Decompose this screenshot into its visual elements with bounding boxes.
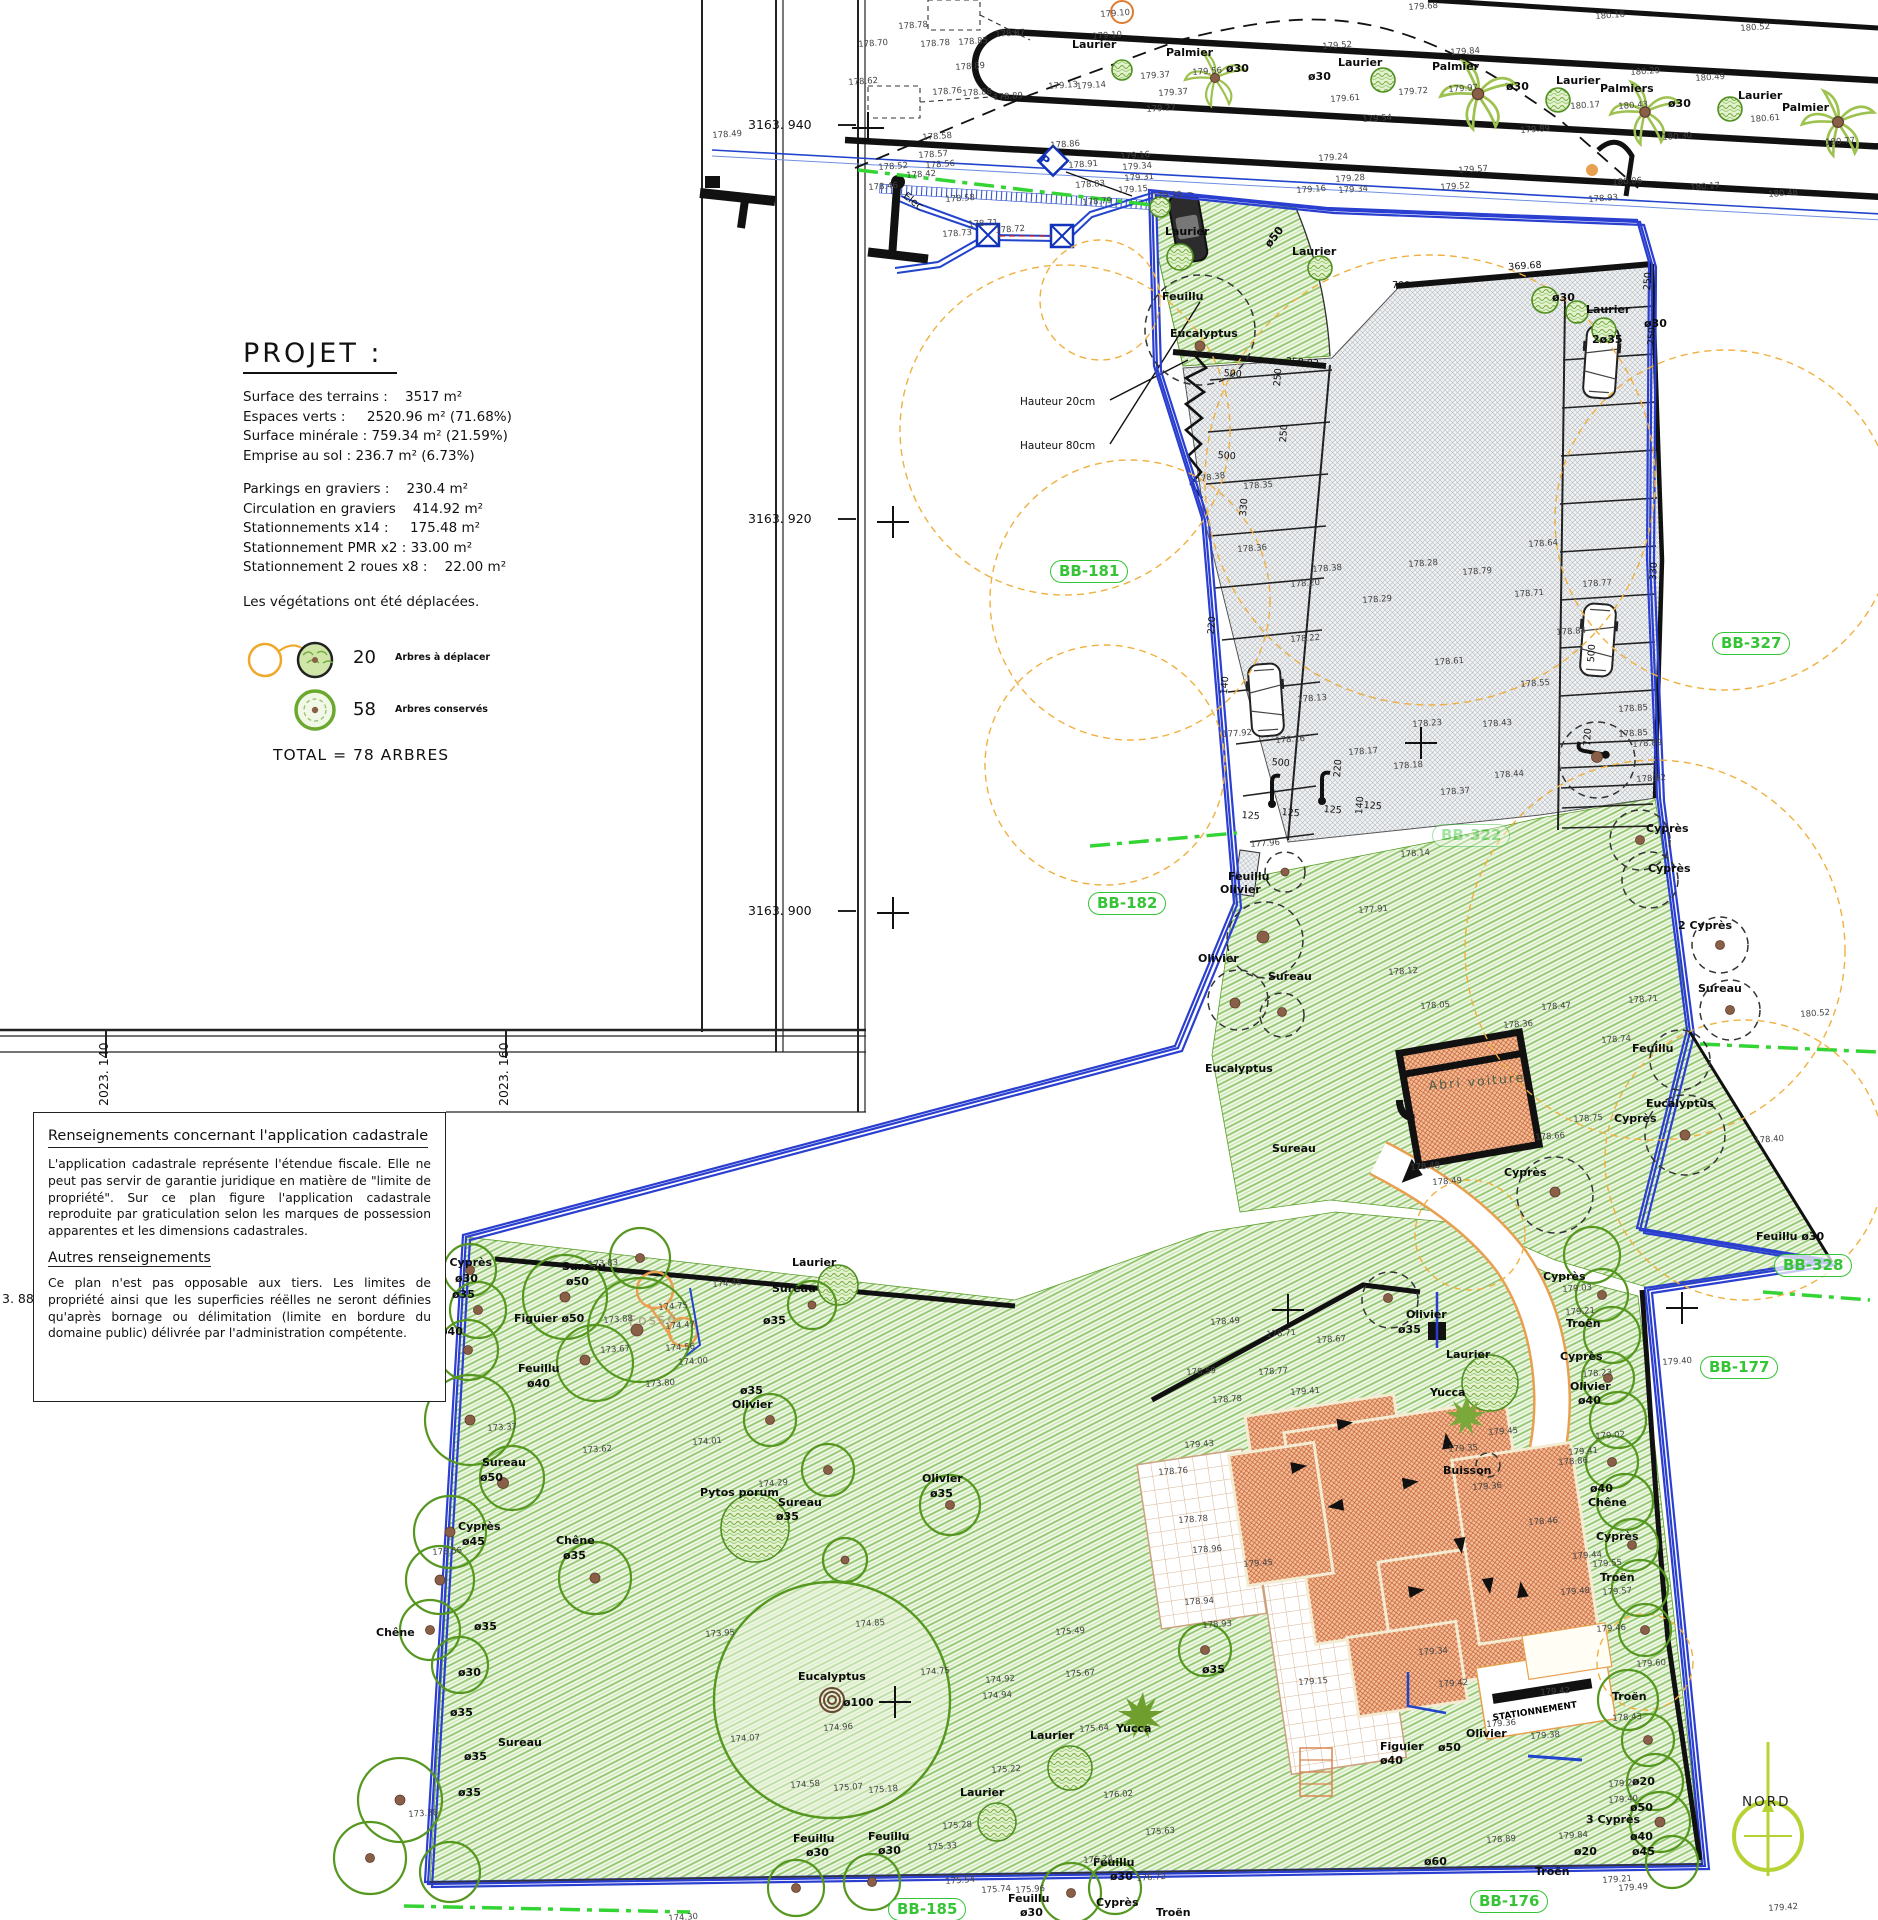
elevation-label: 179.42 bbox=[1540, 1686, 1570, 1698]
elevation-label: 178.93 bbox=[1588, 193, 1618, 205]
tree-label: Cyprès bbox=[1646, 822, 1689, 835]
dimension-label: 220 bbox=[1206, 616, 1218, 635]
elevation-label: 179.36 bbox=[1472, 1481, 1502, 1493]
elevation-label: 179.35 bbox=[1448, 1443, 1478, 1455]
elevation-label: 178.86 bbox=[1558, 1456, 1588, 1468]
tree-label: Eucalyptus bbox=[1170, 327, 1238, 340]
dimension-label: 125 bbox=[1323, 804, 1342, 816]
elevation-label: 180.30 bbox=[1662, 131, 1692, 143]
tree-label: Laurier bbox=[1292, 245, 1336, 258]
elevation-label: 178.37 bbox=[1440, 786, 1470, 798]
elevation-label: 178.38 bbox=[1312, 563, 1342, 575]
elevation-label: 179.46 bbox=[1596, 1623, 1626, 1635]
elevation-label: 175.33 bbox=[927, 1841, 957, 1853]
elevation-label: 179.10 bbox=[1092, 30, 1122, 42]
tree-label: Feuillu ø30 bbox=[1756, 1230, 1824, 1243]
elevation-label: 178.78 bbox=[920, 38, 950, 50]
tree-label: ø35 bbox=[776, 1510, 799, 1523]
elevation-label: 174.07 bbox=[730, 1733, 760, 1745]
elevation-label: 173.56 bbox=[432, 1546, 462, 1558]
tree-label: Sureau bbox=[1268, 970, 1312, 983]
tree-label: Olivier bbox=[1570, 1380, 1611, 1393]
elevation-label: 178.52 bbox=[878, 161, 908, 173]
elevation-label: 173.80 bbox=[645, 1378, 675, 1390]
elevation-label: 178.23 bbox=[1582, 1368, 1612, 1380]
tree-label: Troën bbox=[1600, 1571, 1635, 1584]
elevation-label: 178.49 bbox=[1432, 1176, 1462, 1188]
dimension-label: 250 bbox=[1272, 368, 1284, 387]
tree-label: 2ø35 bbox=[1592, 333, 1623, 346]
dimension-label: 330 bbox=[1648, 562, 1660, 581]
tree-label: Eucalyptus bbox=[1646, 1097, 1714, 1110]
elevation-label: 174.00 bbox=[678, 1356, 708, 1368]
tree-label: Olivier bbox=[1198, 952, 1239, 965]
elevation-label: 176.24 bbox=[1083, 1854, 1113, 1866]
elevation-label: 179.24 bbox=[1318, 152, 1348, 164]
elevation-label: 179.02 bbox=[1595, 1430, 1625, 1442]
elevation-label: 179.38 bbox=[1530, 1730, 1560, 1742]
elevation-label: 173.37 bbox=[487, 1422, 517, 1434]
project-stat-line: Surface minérale : 759.34 m² (21.59%) bbox=[243, 427, 603, 447]
elevation-label: 179.72 bbox=[1398, 86, 1428, 98]
elevation-label: 179.42 bbox=[1768, 1902, 1798, 1914]
annotation-label: Hauteur 20cm bbox=[1020, 396, 1095, 408]
tree-label: Cyprès bbox=[1543, 1270, 1586, 1283]
elevation-label: 179.45 bbox=[1488, 1426, 1518, 1438]
elevation-label: 178.86 bbox=[1050, 139, 1080, 151]
tree-label: Buisson bbox=[1443, 1464, 1491, 1477]
elevation-label: 179.16 bbox=[1296, 184, 1326, 196]
elevation-label: 178.84 bbox=[1556, 626, 1586, 638]
elevation-label: 178.13 bbox=[1297, 693, 1327, 705]
tree-label: Laurier bbox=[1446, 1348, 1490, 1361]
elevation-label: 179.34 bbox=[1122, 161, 1152, 173]
tree-label: ø30 bbox=[1110, 1870, 1133, 1883]
parcel-label: BB-176 bbox=[1470, 1890, 1548, 1913]
elevation-label: 179.54 bbox=[1362, 113, 1392, 125]
tree-label: 3 Cyprès bbox=[1586, 1813, 1640, 1826]
elevation-label: 179.60 bbox=[1636, 1658, 1666, 1670]
project-parking-stats: Parkings en graviers : 230.4 m²Circulati… bbox=[243, 480, 603, 578]
tree-legend: 20 Arbres à déplacer 58 Arbres conservés… bbox=[243, 632, 603, 764]
parcel-label: BB-181 bbox=[1050, 560, 1128, 583]
tree-label: Troën bbox=[1535, 1865, 1570, 1878]
dimension-label: 700 bbox=[1392, 280, 1410, 291]
elevation-label: 179.21 bbox=[1565, 1306, 1595, 1318]
parcel-label: BB-182 bbox=[1088, 892, 1166, 915]
elevation-label: 178.89 bbox=[993, 91, 1023, 103]
elevation-label: 179.68 bbox=[1408, 1, 1438, 13]
tree-label: ø50 bbox=[1438, 1741, 1461, 1754]
elevation-label: 180.61 bbox=[1750, 113, 1780, 125]
elevation-label: 179.84 bbox=[1450, 46, 1480, 58]
tree-total: TOTAL = 78 ARBRES bbox=[273, 746, 603, 764]
elevation-label: 180.52 bbox=[1740, 22, 1770, 34]
elevation-label: 179.14 bbox=[1076, 80, 1106, 92]
dimension-label: 500 bbox=[1586, 644, 1598, 663]
elevation-label: 178.66 bbox=[1535, 1131, 1565, 1143]
tree-label: Palmiers bbox=[1600, 82, 1654, 95]
elevation-label: 179.84 bbox=[1558, 1830, 1588, 1842]
cadastre-paragraph-2: Ce plan n'est pas opposable aux tiers. L… bbox=[48, 1275, 431, 1342]
elevation-label: 179.89 bbox=[1520, 124, 1550, 136]
elevation-label: 175.64 bbox=[1079, 1723, 1109, 1735]
elevation-label: 175.96 bbox=[1015, 1884, 1045, 1896]
elevation-label: 180.49 bbox=[1695, 72, 1725, 84]
elevation-label: 175.28 bbox=[942, 1820, 972, 1832]
tree-label: Cyprès bbox=[1596, 1530, 1639, 1543]
tree-label: ø50 bbox=[566, 1275, 589, 1288]
elevation-label: 178.64 bbox=[1528, 538, 1558, 550]
elevation-label: 176.02 bbox=[1103, 1789, 1133, 1801]
tree-label: ø35 bbox=[930, 1487, 953, 1500]
elevation-label: 178.16 bbox=[1275, 734, 1305, 746]
tree-label: ø30 bbox=[458, 1666, 481, 1679]
elevation-label: 178.85 bbox=[958, 36, 988, 48]
car-icon bbox=[1245, 663, 1288, 737]
dimension-label: 720 bbox=[1582, 728, 1594, 747]
elevation-label: 177.91 bbox=[1358, 904, 1388, 916]
elevation-label: 178.75 bbox=[1573, 1113, 1603, 1125]
elevation-label: 180.17 bbox=[1690, 181, 1720, 193]
tree-label: Olivier bbox=[732, 1398, 773, 1411]
tree-label: Eucalyptus bbox=[798, 1670, 866, 1683]
elevation-label: 178.59 bbox=[1186, 1366, 1216, 1378]
project-stat-line: Stationnement 2 roues x8 : 22.00 m² bbox=[243, 558, 603, 578]
tree-label: ø100 bbox=[843, 1696, 874, 1709]
elevation-label: 178.17 bbox=[1348, 746, 1378, 758]
cadastre-subtitle: Autres renseignements bbox=[48, 1250, 211, 1267]
elevation-label: 179.41 bbox=[1290, 1386, 1320, 1398]
tree-label: ø40 bbox=[1578, 1394, 1601, 1407]
elevation-label: 178.89 bbox=[1632, 738, 1662, 750]
tree-label: Sureau bbox=[1698, 982, 1742, 995]
elevation-label: 178.71 bbox=[968, 218, 998, 230]
elevation-label: 174.58 bbox=[790, 1779, 820, 1791]
elevation-label: 178.36 bbox=[1237, 543, 1267, 555]
elevation-label: 178.48 bbox=[1410, 1161, 1440, 1173]
elevation-label: 178.79 bbox=[1082, 196, 1112, 208]
elevation-label: 178.35 bbox=[1243, 480, 1273, 492]
dimension-label: 250 bbox=[1278, 424, 1290, 443]
parcel-label: BB-328 bbox=[1774, 1254, 1852, 1277]
elevation-label: 175.67 bbox=[1065, 1668, 1095, 1680]
elevation-label: 178.18 bbox=[1393, 760, 1423, 772]
parcel-label: BB-177 bbox=[1700, 1356, 1778, 1379]
elevation-label: 179.37 bbox=[1140, 70, 1170, 82]
tree-label: Cyprès bbox=[1096, 1896, 1139, 1909]
tree-label: ø35 bbox=[563, 1549, 586, 1562]
elevation-label: 178.61 bbox=[1434, 656, 1464, 668]
project-stat-line: Stationnements x14 : 175.48 m² bbox=[243, 519, 603, 539]
elevation-label: 178.20 bbox=[1290, 578, 1320, 590]
tree-label: Troën bbox=[1612, 1690, 1647, 1703]
gate-symbol bbox=[1598, 142, 1632, 196]
tree-label: ø30 bbox=[806, 1846, 829, 1859]
elevation-label: 178.88 bbox=[962, 87, 992, 99]
elevation-label: 179.57 bbox=[1602, 1586, 1632, 1598]
tree-label: Cyprès bbox=[1614, 1112, 1657, 1125]
tree-label: Eucalyptus bbox=[1205, 1062, 1273, 1075]
tree-label: Chêne bbox=[556, 1534, 595, 1547]
elevation-label: 178.71 bbox=[1514, 588, 1544, 600]
elevation-label: 178.43 bbox=[1612, 1712, 1642, 1724]
elevation-label: 180.17 bbox=[1570, 100, 1600, 112]
elevation-label: 173.83 bbox=[588, 1258, 618, 1270]
dimension-label: 369.68 bbox=[1508, 260, 1542, 273]
tree-label: Laurier bbox=[960, 1786, 1004, 1799]
elevation-label: 174.29 bbox=[758, 1478, 788, 1490]
elevation-label: 174.92 bbox=[985, 1674, 1015, 1686]
elevation-label: 179.34 bbox=[1418, 1646, 1448, 1658]
elevation-label: 173.38 bbox=[408, 1808, 438, 1820]
tree-label: ø30 bbox=[1020, 1906, 1043, 1919]
elevation-label: 179.61 bbox=[1330, 93, 1360, 105]
elevation-label: 175.22 bbox=[991, 1764, 1021, 1776]
dimension-label: 500 bbox=[1217, 450, 1236, 462]
elevation-label: 174.01 bbox=[692, 1436, 722, 1448]
elevation-label: 174.45 bbox=[712, 1278, 742, 1290]
elevation-label: 178.42 bbox=[906, 169, 936, 181]
tree-label: Chêne bbox=[376, 1626, 415, 1639]
tree-label: Feuillu bbox=[518, 1362, 560, 1375]
project-panel: PROJET : Surface des terrains : 3517 m²E… bbox=[243, 338, 603, 764]
tree-label: ø35 bbox=[474, 1620, 497, 1633]
project-title: PROJET : bbox=[243, 338, 397, 374]
elevation-label: 180.06 bbox=[1612, 176, 1642, 188]
elevation-label: 178.87 bbox=[995, 28, 1025, 40]
elevation-label: 174.96 bbox=[823, 1722, 853, 1734]
elevation-label: 174.56 bbox=[665, 1342, 695, 1354]
elevation-label: 179.40 bbox=[1662, 1356, 1692, 1368]
elevation-label: 178.76 bbox=[1158, 1466, 1188, 1478]
kept-tree-icon bbox=[243, 684, 353, 736]
tree-label: 2 Cyprès bbox=[1678, 919, 1732, 932]
tree-label: ø30 bbox=[1506, 80, 1529, 93]
elevation-label: 178.77 bbox=[1582, 578, 1612, 590]
tree-label: ø45 bbox=[1632, 1845, 1655, 1858]
elevation-label: 180.52 bbox=[1800, 1008, 1830, 1020]
tree-label: ø40 bbox=[1380, 1754, 1403, 1767]
elevation-label: 178.62 bbox=[848, 76, 878, 88]
tree-label: Cyprès bbox=[458, 1520, 501, 1533]
elevation-label: 173.62 bbox=[582, 1444, 612, 1456]
kept-tree-count: 58 bbox=[353, 699, 395, 720]
elevation-label: 179.03 bbox=[1562, 1283, 1592, 1295]
elevation-label: 174.75 bbox=[658, 1301, 688, 1313]
elevation-label: 178.70 bbox=[858, 38, 888, 50]
project-stat-line: Espaces verts : 2520.96 m² (71.68%) bbox=[243, 408, 603, 428]
elevation-label: 178.91 bbox=[1068, 159, 1098, 171]
elevation-label: 179.27 bbox=[1146, 103, 1176, 115]
elevation-label: 178.74 bbox=[1601, 1034, 1631, 1046]
tree-label: Sureau bbox=[482, 1456, 526, 1469]
dimension-label: 125 bbox=[1281, 807, 1300, 819]
elevation-label: 173.67 bbox=[600, 1344, 630, 1356]
elevation-label: 179.36 bbox=[1486, 1718, 1516, 1730]
kept-tree-label: Arbres conservés bbox=[395, 704, 488, 715]
elevation-label: 178.71 bbox=[1628, 994, 1658, 1006]
dimension-label: 250 bbox=[1642, 272, 1654, 291]
tree-label: Figuier ø50 bbox=[514, 1312, 584, 1325]
tree-label: ø40 bbox=[527, 1377, 550, 1390]
grid-coordinate-label: 3163. 900 bbox=[748, 903, 812, 918]
tree-label: Laurier bbox=[1030, 1729, 1074, 1742]
parcel-label: BB-327 bbox=[1712, 632, 1790, 655]
elevation-label: 178.93 bbox=[1202, 1619, 1232, 1631]
elevation-label: 174.94 bbox=[982, 1690, 1012, 1702]
elevation-label: 175.07 bbox=[833, 1782, 863, 1794]
elevation-label: 178.49 bbox=[712, 129, 742, 141]
elevation-label: 178.58 bbox=[945, 193, 975, 205]
elevation-label: 178.40 bbox=[1754, 1134, 1784, 1146]
elevation-label: 178.23 bbox=[1412, 718, 1442, 730]
elevation-label: 179.42 bbox=[1438, 1678, 1468, 1690]
elevation-label: 179.34 bbox=[1338, 184, 1368, 196]
tree-label: Olivier bbox=[922, 1472, 963, 1485]
elevation-label: 178.92 bbox=[1636, 773, 1666, 785]
tree-label: ø20 bbox=[1574, 1845, 1597, 1858]
tree-label: Palmier bbox=[1432, 60, 1479, 73]
elevation-label: 178.78 bbox=[1212, 1394, 1242, 1406]
elevation-label: 178.77 bbox=[1258, 1366, 1288, 1378]
elevation-label: 178.49 bbox=[1210, 1316, 1240, 1328]
elevation-label: 177.96 bbox=[1250, 838, 1280, 850]
tree-label: Sureau bbox=[498, 1736, 542, 1749]
moved-tree-label: Arbres à déplacer bbox=[395, 652, 490, 663]
elevation-label: 179.55 bbox=[1592, 1558, 1622, 1570]
tree-label: Sureau bbox=[778, 1496, 822, 1509]
tree-label: Laurier bbox=[1556, 74, 1600, 87]
elevation-label: 180.16 bbox=[1595, 10, 1625, 22]
elevation-label: 178.36 bbox=[1503, 1019, 1533, 1031]
project-stat-line: Stationnement PMR x2 : 33.00 m² bbox=[243, 539, 603, 559]
tree-label: Olivier bbox=[1406, 1308, 1447, 1321]
elevation-label: 176.72 bbox=[1136, 1872, 1166, 1884]
elevation-label: 178.46 bbox=[868, 181, 898, 193]
elevation-label: 178.12 bbox=[1388, 966, 1418, 978]
tree-label: ø35 bbox=[452, 1288, 475, 1301]
elevation-label: 174.85 bbox=[855, 1618, 885, 1630]
elevation-label: 178.29 bbox=[1362, 594, 1392, 606]
tree-label: ø35 bbox=[740, 1384, 763, 1397]
tree-label: Feuillu bbox=[793, 1832, 835, 1845]
elevation-label: 178.43 bbox=[1482, 718, 1512, 730]
elevation-label: 179.56 bbox=[1192, 66, 1222, 78]
elevation-label: 179.15 bbox=[1298, 1676, 1328, 1688]
tree-label: Laurier bbox=[1165, 225, 1209, 238]
tree-label: ø35 bbox=[450, 1706, 473, 1719]
tree-label: Sureau bbox=[1272, 1142, 1316, 1155]
elevation-label: 179.29 bbox=[1152, 190, 1182, 202]
tree-label: Feuillu bbox=[1228, 870, 1270, 883]
tree-label: ø30 bbox=[1552, 291, 1575, 304]
elevation-label: 178.96 bbox=[1192, 1544, 1222, 1556]
tree-label: ø60 bbox=[1424, 1855, 1447, 1868]
tree-label: ø30 bbox=[455, 1272, 478, 1285]
elevation-label: 179.49 bbox=[1618, 1882, 1648, 1894]
elevation-label: 178.71 bbox=[1266, 1328, 1296, 1340]
elevation-label: 178.67 bbox=[1316, 1334, 1346, 1346]
grid-coordinate-label: 3163. 920 bbox=[748, 511, 812, 526]
tree-label: Figuier bbox=[1380, 1740, 1424, 1753]
tree-label: Palmier bbox=[1166, 46, 1213, 59]
legend-row-moved-trees: 20 Arbres à déplacer bbox=[243, 632, 603, 684]
elevation-label: 175.49 bbox=[1055, 1626, 1085, 1638]
dimension-label: 330 bbox=[1238, 498, 1250, 517]
tree-label: Troën bbox=[1156, 1906, 1191, 1919]
tree-label: ø40 bbox=[1630, 1830, 1653, 1843]
tree-label: Laurier bbox=[1586, 303, 1630, 316]
dimension-label: 140 bbox=[1354, 796, 1366, 815]
elevation-label: 180.43 bbox=[1618, 100, 1648, 112]
dimension-label: 140 bbox=[1219, 676, 1231, 695]
cadastre-panel: Renseignements concernant l'application … bbox=[33, 1112, 446, 1402]
tree-label: ø35 bbox=[1202, 1663, 1225, 1676]
dimension-label: 125 bbox=[1363, 800, 1382, 812]
dimension-label: 250 bbox=[1646, 327, 1658, 346]
elevation-label: 178.72 bbox=[995, 224, 1025, 236]
project-stat-line: Surface des terrains : 3517 m² bbox=[243, 388, 603, 408]
tree-label: ø50 bbox=[480, 1471, 503, 1484]
tree-label: ø30 bbox=[878, 1844, 901, 1857]
elevation-label: 174.47 bbox=[665, 1320, 695, 1332]
elevation-label: 178.58 bbox=[922, 131, 952, 143]
elevation-label: 178.47 bbox=[1541, 1001, 1571, 1013]
tree-label: Feuillu bbox=[868, 1830, 910, 1843]
elevation-label: 179.13 bbox=[1048, 80, 1078, 92]
elevation-label: 178.89 bbox=[1486, 1834, 1516, 1846]
dimension-label: 500 bbox=[1223, 368, 1242, 380]
site-plan-sheet: ElecHauteur 20cmHauteur 80cmAbri voiture… bbox=[0, 0, 1878, 1920]
tree-label: Laurier bbox=[1738, 89, 1782, 102]
elevation-label: 179.16 bbox=[1120, 150, 1150, 162]
elevation-label: 179.28 bbox=[1335, 173, 1365, 185]
tree-label: Feuillu bbox=[1632, 1042, 1674, 1055]
elevation-label: 178.79 bbox=[1462, 566, 1492, 578]
elevation-label: 175.54 bbox=[945, 1875, 975, 1887]
elevation-label: 175.63 bbox=[1145, 1826, 1175, 1838]
elevation-label: 179.40 bbox=[1608, 1794, 1638, 1806]
tree-label: ø35 bbox=[458, 1786, 481, 1799]
grid-coordinate-label: 3163. 940 bbox=[748, 117, 812, 132]
elevation-label: 178.05 bbox=[1420, 1000, 1450, 1012]
elevation-label: 179.31 bbox=[1124, 172, 1154, 184]
elevation-label: 179.97 bbox=[1448, 83, 1478, 95]
tree-label: Feuillu bbox=[1162, 290, 1204, 303]
project-stat-line: Circulation en graviers 414.92 m² bbox=[243, 500, 603, 520]
tree-label: Yucca bbox=[1430, 1386, 1465, 1399]
tree-label: ø30 bbox=[1668, 97, 1691, 110]
elevation-label: 178.14 bbox=[1400, 848, 1430, 860]
elevation-label: 178.85 bbox=[1618, 703, 1648, 715]
tree-label: Sureau bbox=[772, 1282, 816, 1295]
project-surface-stats: Surface des terrains : 3517 m²Espaces ve… bbox=[243, 388, 603, 466]
elevation-label: 178.44 bbox=[1494, 769, 1524, 781]
legend-row-kept-trees: 58 Arbres conservés bbox=[243, 684, 603, 736]
tree-label: Palmier bbox=[1782, 101, 1829, 114]
project-stat-line: Emprise au sol : 236.7 m² (6.73%) bbox=[243, 447, 603, 467]
tree-label: ø40 bbox=[1590, 1482, 1613, 1495]
elevation-label: 180.77 bbox=[1825, 136, 1855, 148]
elevation-label: 179.52 bbox=[1440, 181, 1470, 193]
tree-label: ø35 bbox=[464, 1750, 487, 1763]
grid-coordinate-label: 2023. 160 bbox=[496, 1042, 511, 1106]
tree-label: Yucca bbox=[1116, 1722, 1151, 1735]
elevation-label: 178.55 bbox=[1520, 678, 1550, 690]
elevation-label: 178.22 bbox=[1290, 633, 1320, 645]
moved-tree-icon bbox=[243, 633, 353, 683]
